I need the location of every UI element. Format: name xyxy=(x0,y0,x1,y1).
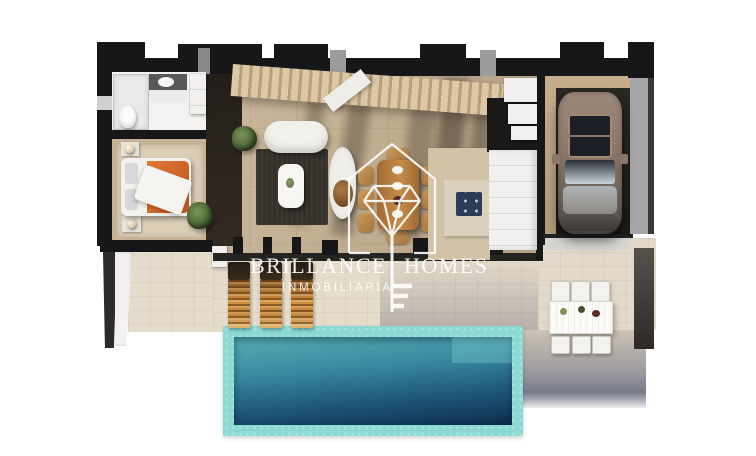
outer-wall-right-face xyxy=(630,78,650,234)
outdoor-table-decor xyxy=(592,310,600,317)
outdoor-chair xyxy=(551,281,570,302)
bedroom-closet xyxy=(190,74,206,114)
outdoor-table-decor xyxy=(560,308,567,315)
dining-chair xyxy=(358,166,374,185)
place-setting xyxy=(392,166,403,174)
dining-chair xyxy=(358,190,374,209)
garage-door-band xyxy=(545,238,631,250)
sun-lounger xyxy=(260,280,282,328)
terrace-left xyxy=(128,240,214,332)
car-sunroof-divider xyxy=(568,135,612,137)
pool-water-highlight xyxy=(452,337,512,363)
outdoor-chair xyxy=(592,336,611,354)
outer-wall-right-edge xyxy=(648,78,654,234)
outer-wall-left xyxy=(97,42,112,246)
table-centerpiece xyxy=(393,196,403,205)
bedside-lamp xyxy=(125,144,134,153)
wall-window-gap xyxy=(97,96,112,110)
outer-wall-top-segment xyxy=(274,44,328,59)
kitchen-cabinets xyxy=(489,150,537,250)
dining-chair xyxy=(387,231,409,244)
outdoor-chair xyxy=(571,281,590,302)
entry-closet xyxy=(511,126,537,140)
car-bumper xyxy=(561,214,619,231)
outdoor-table-decor xyxy=(578,306,585,313)
vanity-cabinet xyxy=(149,90,187,102)
outer-wall-top-segment xyxy=(420,44,466,59)
sun-lounger xyxy=(291,280,313,328)
bedside-lamp xyxy=(127,219,136,228)
coffee-table-decor xyxy=(286,178,294,188)
sun-lounger-back xyxy=(260,262,282,280)
outdoor-chair xyxy=(551,336,570,354)
bed-pillow xyxy=(125,163,138,184)
door-post xyxy=(292,237,301,254)
pergola-post xyxy=(634,248,654,349)
car-mirror xyxy=(620,154,628,164)
outer-wall-top-segment xyxy=(178,44,262,59)
sun-lounger xyxy=(228,280,250,328)
dining-chair xyxy=(358,213,374,232)
sun-lounger-back xyxy=(228,262,250,280)
outdoor-chair xyxy=(572,336,591,354)
sofa xyxy=(264,121,328,153)
car-mirror xyxy=(552,154,560,164)
car-hood xyxy=(563,186,617,214)
cooktop xyxy=(456,192,482,216)
wall-bath-bedroom xyxy=(112,130,206,139)
entry-closet xyxy=(504,78,537,102)
plant xyxy=(187,202,213,229)
outer-wall-right-top xyxy=(628,42,654,78)
plant xyxy=(232,126,257,151)
toilet xyxy=(119,106,136,128)
wall-garage-bottom xyxy=(543,234,633,238)
entry-closet xyxy=(508,104,537,124)
garden-wall xyxy=(103,252,117,348)
terrace-fade xyxy=(520,392,646,410)
sun-lounger-back xyxy=(291,262,313,280)
wall-concrete-face xyxy=(480,50,496,76)
wall-bedroom-bottom xyxy=(100,240,213,252)
outdoor-chair xyxy=(591,281,610,302)
floor-plan-render: BRILLANCE HOMES INMOBILIARIA xyxy=(0,0,756,456)
door-post xyxy=(233,237,243,254)
outer-wall-top-segment xyxy=(560,42,604,59)
wall-terrace-segment xyxy=(322,240,338,255)
wall-garage-left xyxy=(537,73,545,245)
terrace-shadow xyxy=(380,256,543,332)
car xyxy=(558,92,622,234)
vanity-sink xyxy=(158,77,174,87)
place-setting xyxy=(392,182,403,190)
place-setting xyxy=(392,210,403,218)
car-windshield xyxy=(565,160,615,184)
door-post xyxy=(263,237,272,254)
daybed-cushion xyxy=(333,180,353,207)
